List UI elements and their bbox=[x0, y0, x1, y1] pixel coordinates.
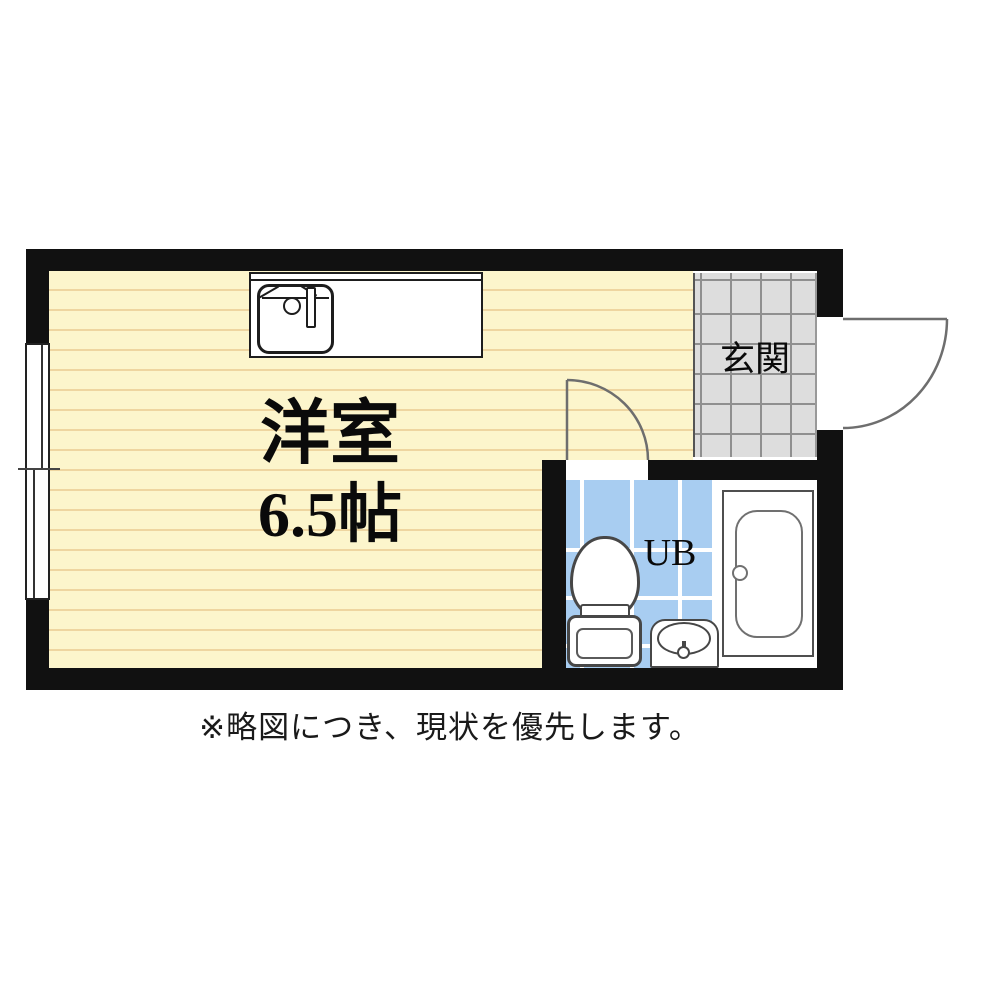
kitchen-faucet bbox=[283, 297, 301, 315]
wall-unit-bath-left bbox=[542, 460, 566, 690]
wall-bottom bbox=[26, 668, 843, 690]
wall-left-lower bbox=[26, 598, 49, 690]
entrance-label: 玄関 bbox=[700, 342, 810, 377]
window-center-tick bbox=[18, 468, 60, 470]
main-room-area-label: 6.5帖 bbox=[230, 483, 430, 547]
interior-door-opening bbox=[566, 460, 648, 480]
window-pane-lower-line bbox=[33, 470, 35, 598]
main-room-label: 洋室 bbox=[230, 400, 430, 470]
kitchen-sink bbox=[257, 284, 334, 354]
washbasin-faucet-handle bbox=[682, 641, 686, 648]
bathtub-drain bbox=[732, 565, 748, 581]
window bbox=[25, 343, 50, 600]
kitchen-counter-edge-line bbox=[251, 279, 481, 281]
wall-right-upper bbox=[817, 249, 843, 317]
entrance-door-swing-arc bbox=[843, 319, 947, 428]
window-pane-upper-line bbox=[41, 345, 43, 470]
floor-plan: 洋室 6.5帖 玄関 UB ※略図につき、現状を優先します。 bbox=[0, 0, 1000, 1000]
wall-top bbox=[26, 249, 843, 271]
disclaimer-note: ※略図につき、現状を優先します。 bbox=[150, 712, 750, 743]
toilet-tank-inner bbox=[576, 628, 633, 659]
wall-unit-bath-top bbox=[648, 460, 843, 480]
entrance-door bbox=[843, 319, 947, 428]
wall-left-upper bbox=[26, 249, 49, 345]
kitchen-faucet-lever bbox=[306, 287, 316, 328]
entrance-door-opening bbox=[817, 317, 843, 430]
unit-bath-label: UB bbox=[640, 534, 700, 572]
